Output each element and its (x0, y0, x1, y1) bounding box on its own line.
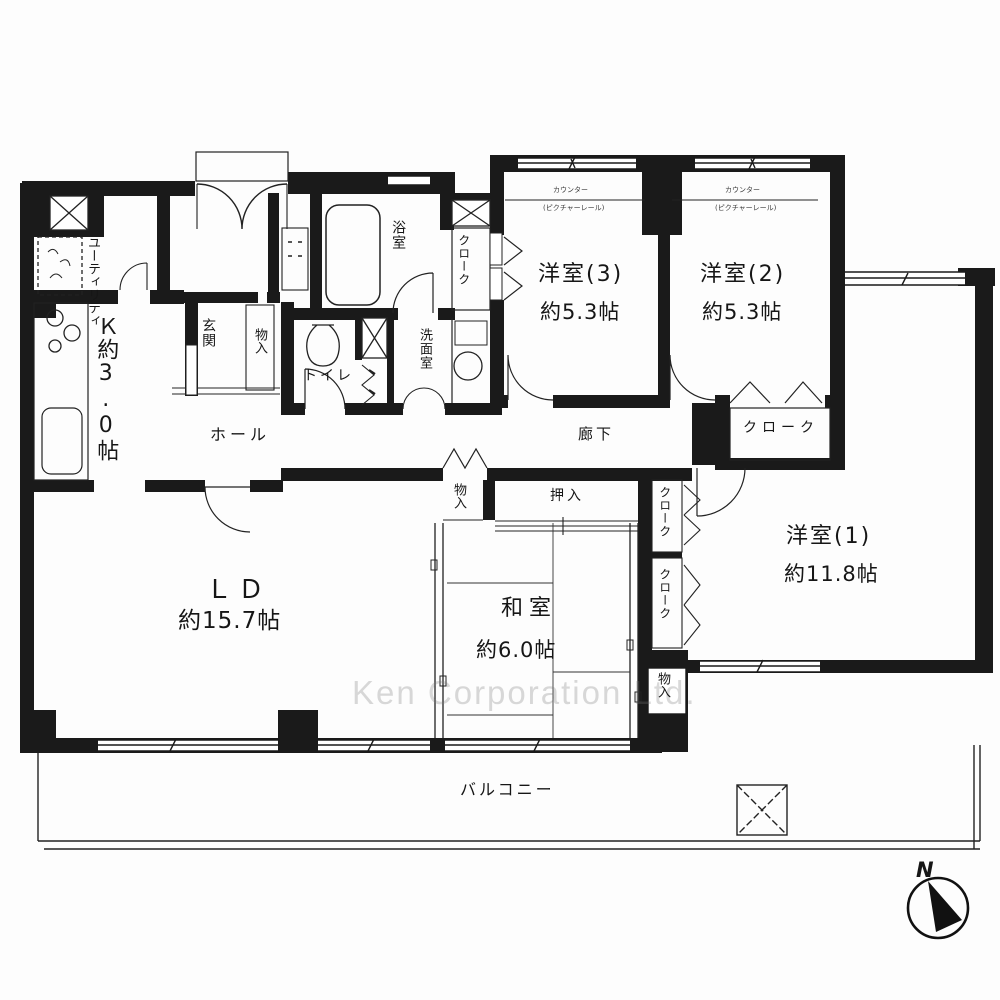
utility-label: ユーティリティ (84, 236, 100, 298)
watermark: Ken Corporation Ltd. (352, 674, 697, 712)
compass-icon (908, 878, 968, 938)
balcony-label: バルコニー (460, 781, 555, 799)
yoshitsu2-name: 洋室(2) (700, 262, 785, 287)
cloak-bath-label: クローク (456, 234, 470, 286)
storage-entrance-label: 物入 (251, 328, 266, 354)
hall-label: ホール (210, 426, 270, 444)
storage-center-label: 物入 (450, 483, 465, 509)
north-label: N (916, 858, 934, 882)
washitsu-name: 和室 (501, 596, 557, 621)
yoshitsu2-size: 約5.3帖 (702, 300, 782, 324)
floor-plan: Ken Corporation Ltd. (0, 0, 1000, 1000)
walls (20, 155, 995, 753)
storage-south-label: 物入 (654, 672, 669, 698)
genkan-label: 玄関 (200, 318, 216, 348)
yoshitsu1-name: 洋室(1) (786, 524, 871, 549)
corridor-label: 廊下 (578, 426, 614, 443)
yoshitsu1-size: 約11.8帖 (784, 562, 879, 586)
cloak-y2-label: クローク (743, 420, 819, 436)
washroom-label: 洗面室 (416, 328, 431, 370)
ld-size: 約15.7帖 (178, 608, 281, 634)
y3-counter-note: カウンター (553, 186, 588, 194)
ld-name: ＬＤ (206, 576, 270, 606)
y2-bracket-note: (ピクチャーレール) (715, 204, 776, 212)
washitsu-size: 約6.0帖 (476, 638, 556, 662)
y2-counter-note: カウンター (725, 186, 760, 194)
yoshitsu3-size: 約5.3帖 (540, 300, 620, 324)
y3-bracket-note: (ピクチャーレール) (543, 204, 604, 212)
cloak-y1-upper-label: クローク (657, 486, 671, 538)
bath-label: 浴室 (390, 220, 406, 250)
floorplan-drawing (0, 0, 1000, 1000)
cloak-y1-lower-label: クローク (657, 568, 671, 620)
toilet-label: トイレ (303, 368, 354, 384)
oshiire-label: 押入 (550, 488, 584, 504)
yoshitsu3-name: 洋室(3) (538, 262, 623, 287)
kitchen-label: Ｋ約3.0帖 (93, 315, 118, 475)
